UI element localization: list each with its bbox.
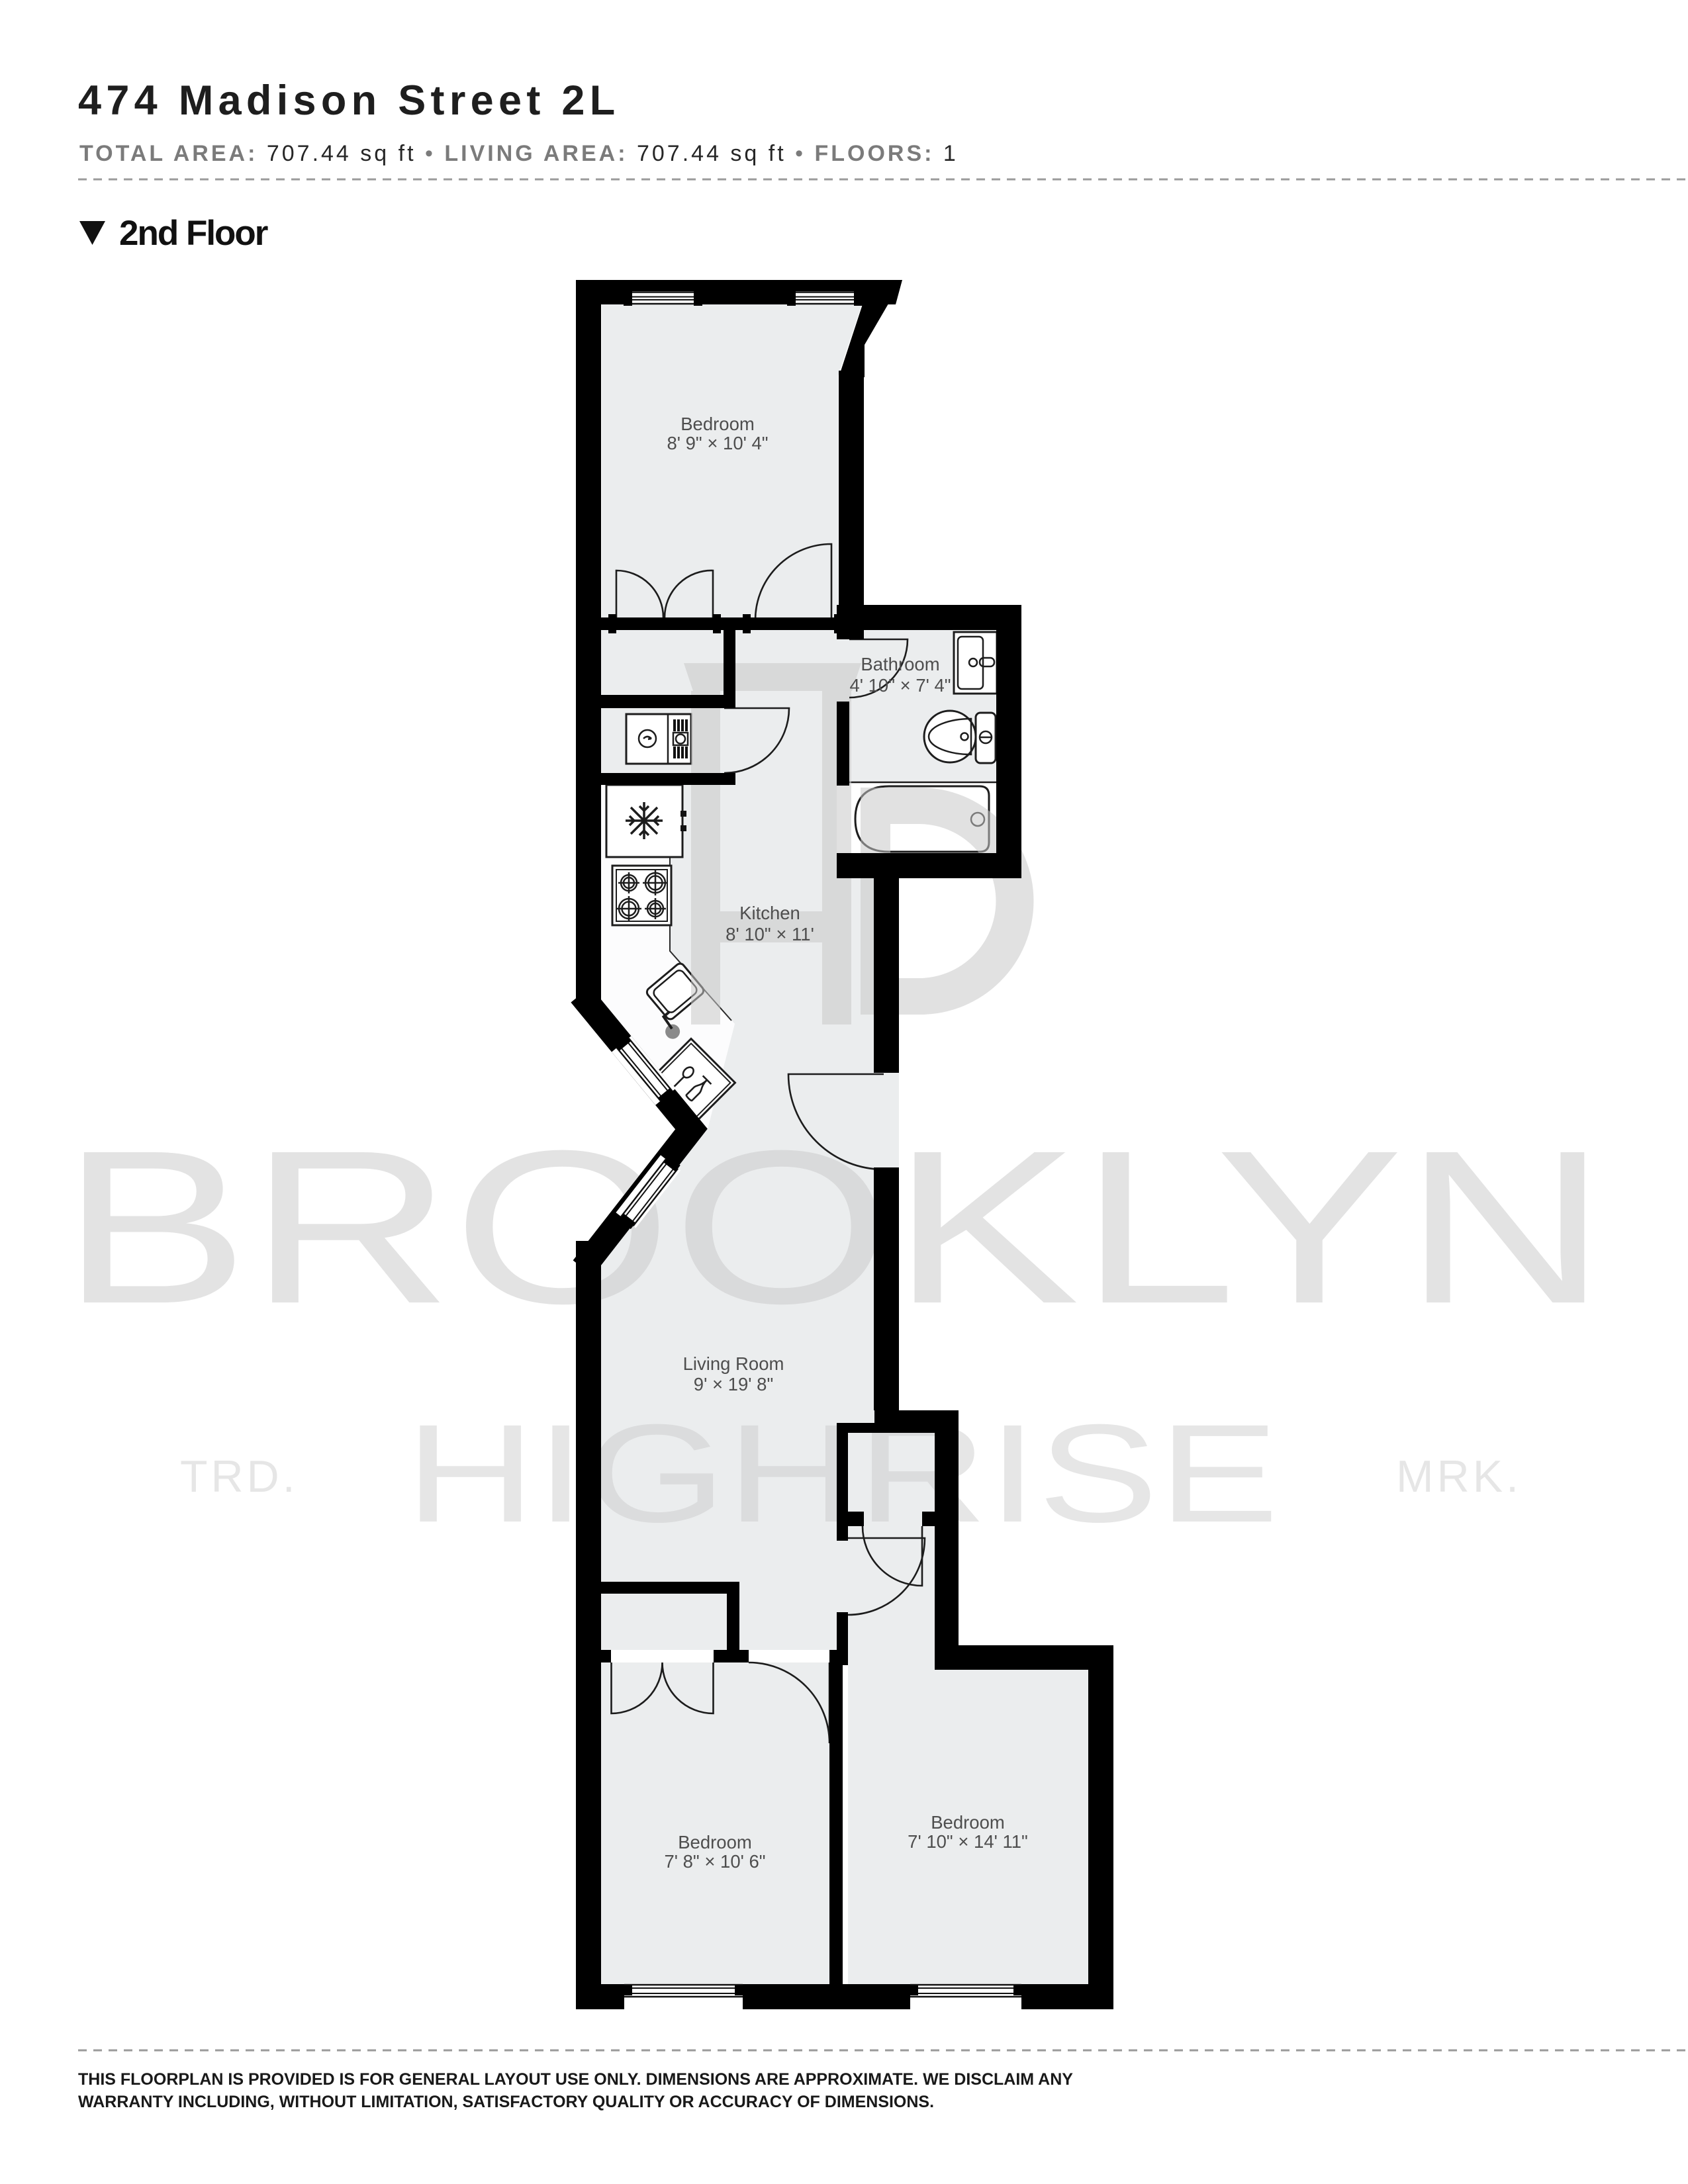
svg-text:THIS FLOORPLAN IS PROVIDED IS: THIS FLOORPLAN IS PROVIDED IS FOR GENERA…: [78, 2070, 1073, 2089]
svg-text:TRD.: TRD.: [180, 1451, 299, 1502]
svg-text:7' 8" × 10' 6": 7' 8" × 10' 6": [664, 1851, 765, 1872]
svg-text:Bedroom: Bedroom: [931, 1812, 1005, 1833]
svg-text:TOTAL AREA: 707.44 sq ft • LIV: TOTAL AREA: 707.44 sq ft • LIVING AREA: …: [79, 141, 959, 166]
svg-text:WARRANTY INCLUDING, WITHOUT LI: WARRANTY INCLUDING, WITHOUT LIMITATION, …: [78, 2093, 934, 2111]
svg-text:2nd Floor: 2nd Floor: [119, 214, 268, 253]
svg-text:474 Madison Street 2L: 474 Madison Street 2L: [78, 77, 620, 124]
svg-text:Bathroom: Bathroom: [861, 654, 939, 674]
svg-text:Bedroom: Bedroom: [680, 414, 755, 434]
svg-text:BROOKLYN: BROOKLYN: [61, 1105, 1607, 1349]
svg-text:8' 10" × 11': 8' 10" × 11': [726, 924, 814, 944]
svg-text:4' 10" × 7' 4": 4' 10" × 7' 4": [849, 675, 951, 696]
svg-text:Living Room: Living Room: [683, 1353, 784, 1374]
svg-text:Kitchen: Kitchen: [739, 903, 800, 923]
svg-text:Bedroom: Bedroom: [678, 1832, 752, 1852]
svg-text:MRK.: MRK.: [1396, 1451, 1522, 1502]
svg-text:9' × 19' 8": 9' × 19' 8": [694, 1374, 773, 1394]
svg-text:7' 10" × 14' 11": 7' 10" × 14' 11": [908, 1831, 1028, 1852]
svg-text:8' 9" × 10' 4": 8' 9" × 10' 4": [667, 433, 768, 453]
